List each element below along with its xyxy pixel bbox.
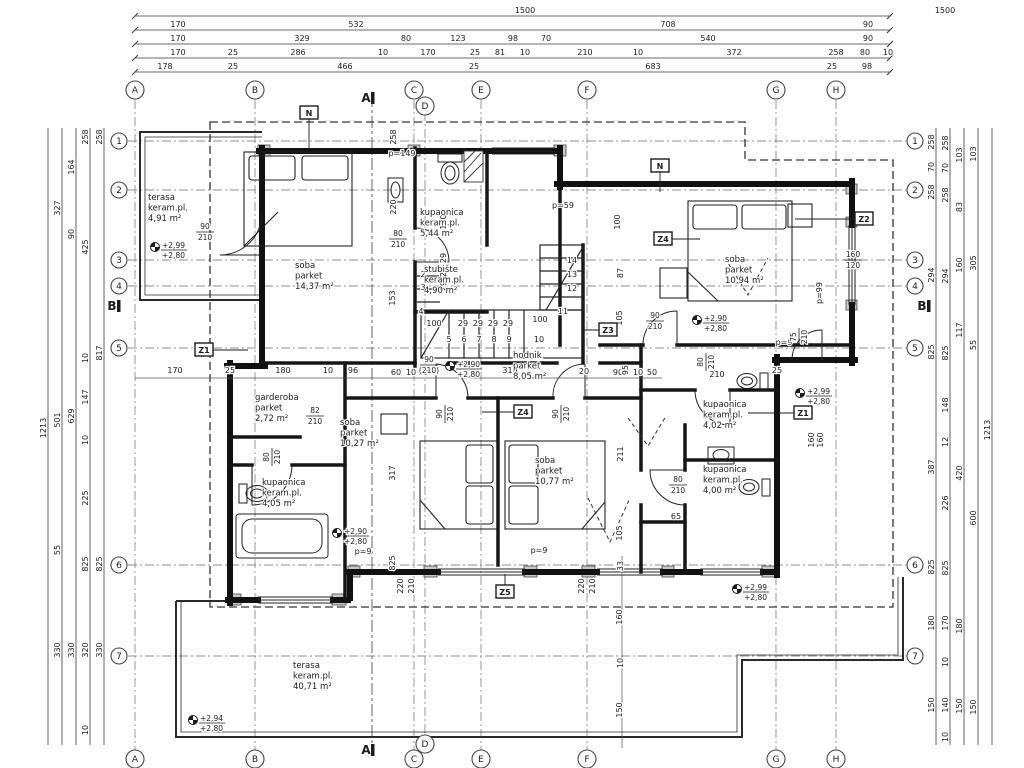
- level-marker: +2,90+2,80: [693, 314, 730, 333]
- section-tick: [371, 744, 375, 756]
- level-marker: +2,99+2,80: [796, 387, 833, 406]
- dim-label: 100: [613, 214, 622, 229]
- room-label: 10,27 m²: [340, 439, 379, 449]
- dim-label: 540: [700, 34, 715, 43]
- bathtub: [236, 514, 328, 558]
- room-label: parket: [513, 362, 541, 372]
- dim-label: 160: [807, 432, 816, 447]
- dim-label: 210: [273, 450, 282, 465]
- section-letter: B: [107, 299, 116, 313]
- grid-bubble-label: G: [773, 755, 780, 765]
- toilet: [438, 154, 462, 184]
- dim-label: 70: [541, 34, 551, 43]
- dim-label: 210: [671, 486, 686, 495]
- dim-label: 83: [955, 202, 964, 212]
- dim-label: 258: [941, 187, 950, 202]
- opening-size-label: 90210: [196, 222, 214, 242]
- dim-label: 210: [308, 417, 323, 426]
- level-value: +2,80: [162, 251, 185, 260]
- dim-label: 10: [616, 658, 625, 668]
- dim-label: 90: [200, 222, 210, 231]
- dim-label: 13: [567, 270, 577, 279]
- level-value: +2,80: [744, 593, 767, 602]
- dim-label: 25: [470, 48, 480, 57]
- dim-label: 294: [941, 268, 950, 283]
- grid-bubble-label: 2: [912, 186, 918, 196]
- dim-label: 123: [450, 34, 465, 43]
- plan-marker-z5: Z5: [496, 574, 514, 598]
- room-label: 40,71 m²: [293, 682, 332, 692]
- dim-label: 258: [81, 129, 90, 144]
- dim-label: 10: [941, 657, 950, 667]
- dim-label: 629: [67, 408, 76, 423]
- dim-label: 258: [927, 184, 936, 199]
- room-label: 10,94 m²: [725, 276, 764, 286]
- dim-label: p=9: [531, 546, 548, 555]
- room-label: terasa: [148, 193, 175, 203]
- dim-label: 98: [862, 62, 872, 71]
- room-label: 4,00 m²: [703, 486, 736, 496]
- dim-label: p=9: [355, 547, 372, 556]
- room-label: parket: [255, 404, 283, 414]
- dim-label: (210): [419, 366, 439, 375]
- dim-label: 170: [170, 20, 185, 29]
- dim-label: 210: [407, 578, 416, 593]
- room-label: 4,91 m²: [148, 214, 181, 224]
- dim-label: 117: [955, 322, 964, 337]
- grid-bubble-label: 3: [116, 256, 122, 266]
- grid-bubble-label: D: [422, 740, 429, 750]
- section-mark-a: A: [361, 91, 374, 105]
- section-mark-b: B: [107, 299, 120, 313]
- dim-label: 817: [95, 345, 104, 360]
- dim-label: 4: [418, 307, 423, 316]
- dim-label: 258: [95, 129, 104, 144]
- section-tick: [927, 300, 931, 312]
- section-letter: A: [361, 743, 371, 757]
- dim-label: 65: [671, 512, 681, 521]
- dim-label: 80: [860, 48, 870, 57]
- dim-label: 25: [469, 62, 479, 71]
- dim-label: 180: [275, 366, 290, 375]
- level-marker: +2,99+2,80: [151, 241, 188, 260]
- plan-marker-n: N: [300, 106, 318, 150]
- dim-label: 210: [562, 407, 571, 422]
- plan-marker-n: N: [651, 159, 669, 192]
- dim-label: 90: [863, 20, 873, 29]
- dim-label: 210: [198, 233, 213, 242]
- grid-bubble-label: H: [833, 755, 840, 765]
- dim-label: 82: [310, 406, 320, 415]
- plan-marker-z3: Z3: [583, 323, 617, 336]
- marker-label: Z1: [198, 346, 210, 355]
- dim-label: 226: [941, 495, 950, 510]
- level-marker: +2,94+2,80: [189, 714, 226, 733]
- room-label: soba: [295, 261, 315, 271]
- plan-marker-z2: Z2: [795, 212, 873, 225]
- dim-label: 12: [567, 284, 577, 293]
- desk: [660, 268, 687, 298]
- dim-label: 100: [532, 315, 547, 324]
- room-label: keram.pl.: [703, 476, 743, 486]
- room-label: parket: [340, 429, 368, 439]
- dim-label: 317: [388, 465, 397, 480]
- dim-label: 90: [67, 229, 76, 239]
- dim-label: 160: [955, 257, 964, 272]
- grid-bubble-label: C: [411, 86, 417, 96]
- dim-label: 12: [941, 437, 950, 447]
- grid-bubble-label: 5: [116, 344, 122, 354]
- dim-label: 825: [941, 345, 950, 360]
- dim-label: 1213: [39, 418, 48, 438]
- dim-label: 150: [955, 698, 964, 713]
- dim-label: 210: [391, 240, 406, 249]
- dim-label: 420: [955, 465, 964, 480]
- grid-bubble-label: A: [132, 755, 139, 765]
- dim-label: 1213: [983, 420, 992, 440]
- grid-bubble-label: 5: [912, 344, 918, 354]
- dim-label: 29: [473, 319, 483, 328]
- dim-label: 258: [941, 135, 950, 150]
- dim-label: 211: [616, 446, 625, 461]
- dim-label: 90: [551, 409, 560, 419]
- dim-label: 466: [337, 62, 352, 71]
- section-tick: [117, 300, 121, 312]
- room-label: kupaonica: [703, 465, 746, 475]
- opening-size-label: 90210: [646, 311, 664, 331]
- dim-label: 320: [81, 642, 90, 657]
- dim-label: 825: [941, 560, 950, 575]
- toilet: [737, 373, 768, 390]
- dim-label: 90: [650, 311, 660, 320]
- room-label: terasa: [293, 661, 320, 671]
- dim-label: 25: [228, 48, 238, 57]
- section-tick: [371, 92, 375, 104]
- grid-bubble-label: F: [584, 86, 589, 96]
- dim-label: 305: [969, 255, 978, 270]
- dim-label: 10: [534, 335, 544, 344]
- room-label: soba: [340, 418, 360, 428]
- level-value: +2,80: [200, 724, 223, 733]
- dim-label: 10: [81, 725, 90, 735]
- level-value: +2,80: [807, 397, 830, 406]
- opening-size-label: 90210: [435, 405, 455, 423]
- dim-label: 75: [789, 332, 798, 342]
- level-value: +2,80: [344, 537, 367, 546]
- section-letter: A: [361, 91, 371, 105]
- grid-bubble-label: 1: [116, 137, 122, 147]
- opening-size-label: 80210: [696, 353, 716, 371]
- room-label: hodnik: [513, 351, 542, 361]
- dim-label: 148: [941, 397, 950, 412]
- dim-label: 180: [955, 618, 964, 633]
- dim-label: 160: [615, 609, 624, 624]
- dim-label: 90: [424, 355, 434, 364]
- grid-bubble-label: 2: [116, 186, 122, 196]
- dim-label: 387: [927, 459, 936, 474]
- opening-size-label: 82210: [306, 406, 324, 426]
- room-label: 4,90 m²: [424, 286, 457, 296]
- dim-label: 80: [696, 357, 705, 367]
- dim-label: 87: [616, 268, 625, 278]
- dim-label: 147: [81, 389, 90, 404]
- plan-marker-z1: Z1: [195, 343, 248, 356]
- grid-bubble-label: E: [478, 86, 484, 96]
- dim-label: 170: [167, 366, 182, 375]
- room-label: keram.pl.: [148, 204, 188, 214]
- room-label: keram.pl.: [420, 219, 460, 229]
- level-value: +2,99: [807, 387, 830, 396]
- dim-label: 8: [491, 335, 496, 344]
- dim-label: 258: [389, 129, 398, 144]
- dim-label: 80: [401, 34, 411, 43]
- dim-label: 258: [927, 134, 936, 149]
- grid-bubble-label: 1: [912, 137, 918, 147]
- dim-label: 150: [969, 699, 978, 714]
- dim-label: 10: [81, 353, 90, 363]
- grid-bubble-label: 4: [912, 282, 918, 292]
- dim-label: 80: [262, 452, 271, 462]
- dim-label: 286: [290, 48, 305, 57]
- dim-label: 140: [941, 697, 950, 712]
- dim-label: 10: [883, 48, 893, 57]
- dim-label: 708: [660, 20, 675, 29]
- dim-label: 1500: [935, 6, 955, 15]
- dim-label: 210: [588, 578, 597, 593]
- level-marker: +2,90+2,80: [333, 527, 370, 546]
- dim-label: 10: [520, 48, 530, 57]
- dim-label: 11: [558, 307, 568, 316]
- marker-label: Z4: [517, 408, 529, 417]
- dim-label: 98: [508, 34, 518, 43]
- bed-center-left: [420, 441, 497, 529]
- opening-size-label: 160120: [844, 250, 862, 270]
- dim-label: 164: [67, 159, 76, 174]
- dim-label: 825: [95, 556, 104, 571]
- dim-label: 25: [228, 62, 238, 71]
- room-label: soba: [535, 456, 555, 466]
- dim-label: 10: [406, 368, 416, 377]
- dim-label: 178: [157, 62, 172, 71]
- grid-bubble-label: G: [773, 86, 780, 96]
- dim-label: 6: [461, 335, 466, 344]
- level-marker: +2,99+2,80: [733, 583, 770, 602]
- dim-label: 25: [772, 366, 782, 375]
- room-label: parket: [295, 272, 323, 282]
- level-marker: +2,90+2,80: [446, 360, 483, 379]
- floor-plan-page: AABBCCDDEEFFGGHH112233445566771500150017…: [0, 0, 1024, 768]
- room-label: 10,77 m²: [535, 477, 574, 487]
- dim-label: 81: [495, 48, 505, 57]
- grid-bubble-label: 7: [912, 652, 918, 662]
- opening-size-label: 90210: [551, 405, 571, 423]
- level-value: +2,90: [344, 527, 367, 536]
- room-label: 4,05 m²: [262, 499, 295, 509]
- dim-label: 20: [579, 367, 589, 376]
- marker-label: Z3: [602, 326, 613, 335]
- dim-label: 29: [503, 319, 513, 328]
- level-value: +2,90: [457, 360, 480, 369]
- dim-label: 160: [816, 432, 825, 447]
- dim-label: 70: [927, 162, 936, 172]
- level-value: +2,80: [704, 324, 727, 333]
- dim-label: 220: [577, 578, 586, 593]
- room-label: 14,37 m²: [295, 282, 334, 292]
- dim-label: 210: [707, 355, 716, 370]
- floor-plan-canvas: AABBCCDDEEFFGGHH112233445566771500150017…: [0, 0, 1024, 768]
- sanitary-fixtures: [236, 154, 770, 558]
- annotation-layer: AABBCCDDEEFFGGHH112233445566771500150017…: [39, 6, 992, 768]
- dim-label: 70: [941, 163, 950, 173]
- dim-label: 150: [615, 702, 624, 717]
- dim-label: 95: [621, 365, 630, 375]
- opening-size-label: 80210: [262, 448, 282, 466]
- dim-label: 10: [323, 366, 333, 375]
- dim-label: 1500: [515, 6, 535, 15]
- dim-label: 105: [615, 525, 624, 540]
- dim-label: 14: [567, 256, 577, 265]
- dim-label: 501: [53, 412, 62, 427]
- dim-label: 532: [348, 20, 363, 29]
- plan-marker-z4: Z4: [482, 405, 532, 418]
- dim-label: 210: [648, 322, 663, 331]
- opening-size-label: 80210: [669, 475, 687, 495]
- opening-size-label: 80210: [389, 229, 407, 249]
- dim-label: 80: [673, 475, 683, 484]
- marker-label: Z4: [657, 235, 669, 244]
- room-label: keram.pl.: [424, 276, 464, 286]
- grid-bubble-label: 6: [116, 561, 122, 571]
- dim-label: 327: [53, 200, 62, 215]
- dim-label: 90: [863, 34, 873, 43]
- dim-label: 25: [225, 366, 235, 375]
- dim-label: 10: [81, 435, 90, 445]
- room-label: 4,02 m²: [703, 421, 736, 431]
- plan-marker-z4: Z4: [654, 232, 700, 245]
- grid-bubble-label: E: [478, 755, 484, 765]
- dim-label: 330: [53, 642, 62, 657]
- dim-label: 258: [828, 48, 843, 57]
- dim-label: 170: [941, 615, 950, 630]
- dim-label: 33: [616, 561, 625, 571]
- dim-label: 825: [927, 559, 936, 574]
- marker-label: Z5: [499, 588, 511, 597]
- room-label: kupaonica: [262, 478, 305, 488]
- section-mark-a: A: [361, 743, 374, 757]
- level-value: +2,94: [200, 714, 223, 723]
- dim-label: 10: [633, 368, 643, 377]
- room-label: kupaonica: [703, 400, 746, 410]
- dim-label: 55: [53, 545, 62, 555]
- dim-label: 96: [348, 366, 358, 375]
- grid-bubble-label: 4: [116, 282, 122, 292]
- room-label: parket: [535, 467, 563, 477]
- room-label: 2,72 m²: [255, 414, 288, 424]
- grid-bubble-label: 7: [116, 652, 122, 662]
- room-label: soba: [725, 255, 745, 265]
- grid-bubble-label: H: [833, 86, 840, 96]
- grid-bubble-label: B: [252, 86, 258, 96]
- room-label: keram.pl.: [262, 489, 302, 499]
- room-label: garderoba: [255, 393, 299, 403]
- shaft-hatch: [464, 151, 483, 182]
- dim-label: 29: [439, 253, 448, 263]
- grid-bubble-label: 6: [912, 561, 918, 571]
- dim-label: 5: [446, 335, 451, 344]
- dim-label: 55: [969, 340, 978, 350]
- dim-label: 153: [388, 290, 397, 305]
- dim-label: 170: [170, 34, 185, 43]
- dim-label: 25: [827, 62, 837, 71]
- level-value: +2,99: [744, 583, 767, 592]
- dim-label: 330: [95, 642, 104, 657]
- dim-label: p=99: [815, 282, 824, 304]
- grid-bubble-label: F: [584, 755, 589, 765]
- dim-label: 825: [388, 555, 397, 570]
- dim-label: 7: [476, 335, 481, 344]
- room-label: stubište: [424, 264, 458, 275]
- marker-label: N: [657, 162, 664, 171]
- dim-label: 683: [645, 62, 660, 71]
- grid-bubble-label: A: [132, 86, 139, 96]
- grid-bubble-label: D: [422, 102, 429, 112]
- dim-label: 10: [633, 48, 643, 57]
- grid-bubble-label: C: [411, 755, 417, 765]
- dim-label: 103: [969, 146, 978, 161]
- marker-label: N: [306, 109, 313, 118]
- dim-label: 825: [927, 344, 936, 359]
- dim-label: 60: [391, 368, 401, 377]
- marker-label: Z1: [797, 409, 809, 418]
- grid-bubble-label: B: [252, 755, 258, 765]
- level-value: +2,99: [162, 241, 185, 250]
- dim-label: 100: [426, 319, 441, 328]
- room-label: keram.pl.: [293, 672, 333, 682]
- dim-label: 10: [378, 48, 388, 57]
- dim-label: 372: [726, 48, 741, 57]
- dim-label: 225: [81, 490, 90, 505]
- dim-label: 210: [800, 330, 809, 345]
- room-label: 8,05 m²: [513, 372, 546, 382]
- dim-label: 825: [81, 556, 90, 571]
- dim-label: 220: [389, 199, 398, 214]
- dim-label: 330: [67, 642, 76, 657]
- dim-label: 210: [446, 407, 455, 422]
- nightstand: [381, 414, 407, 434]
- room-label: kupaonica: [420, 208, 463, 218]
- dim-label: p=149: [388, 149, 415, 158]
- dim-label: 160: [846, 250, 861, 259]
- dim-label: 600: [969, 510, 978, 525]
- room-label: keram.pl.: [703, 411, 743, 421]
- dim-label: 9: [506, 335, 511, 344]
- dim-label: 220: [396, 578, 405, 593]
- dim-label: 80: [393, 229, 403, 238]
- dim-label: 180: [927, 615, 936, 630]
- dim-label: 103: [955, 147, 964, 162]
- level-value: +2,90: [704, 314, 727, 323]
- level-value: +2,80: [457, 370, 480, 379]
- dim-label: 90: [435, 409, 444, 419]
- dim-label: 210: [577, 48, 592, 57]
- marker-label: Z2: [858, 215, 869, 224]
- section-mark-b: B: [917, 299, 930, 313]
- dim-label: 210: [709, 370, 724, 379]
- section-letter: B: [917, 299, 926, 313]
- dim-label: 170: [170, 48, 185, 57]
- room-label: parket: [725, 266, 753, 276]
- grid-bubble-label: 3: [912, 256, 918, 266]
